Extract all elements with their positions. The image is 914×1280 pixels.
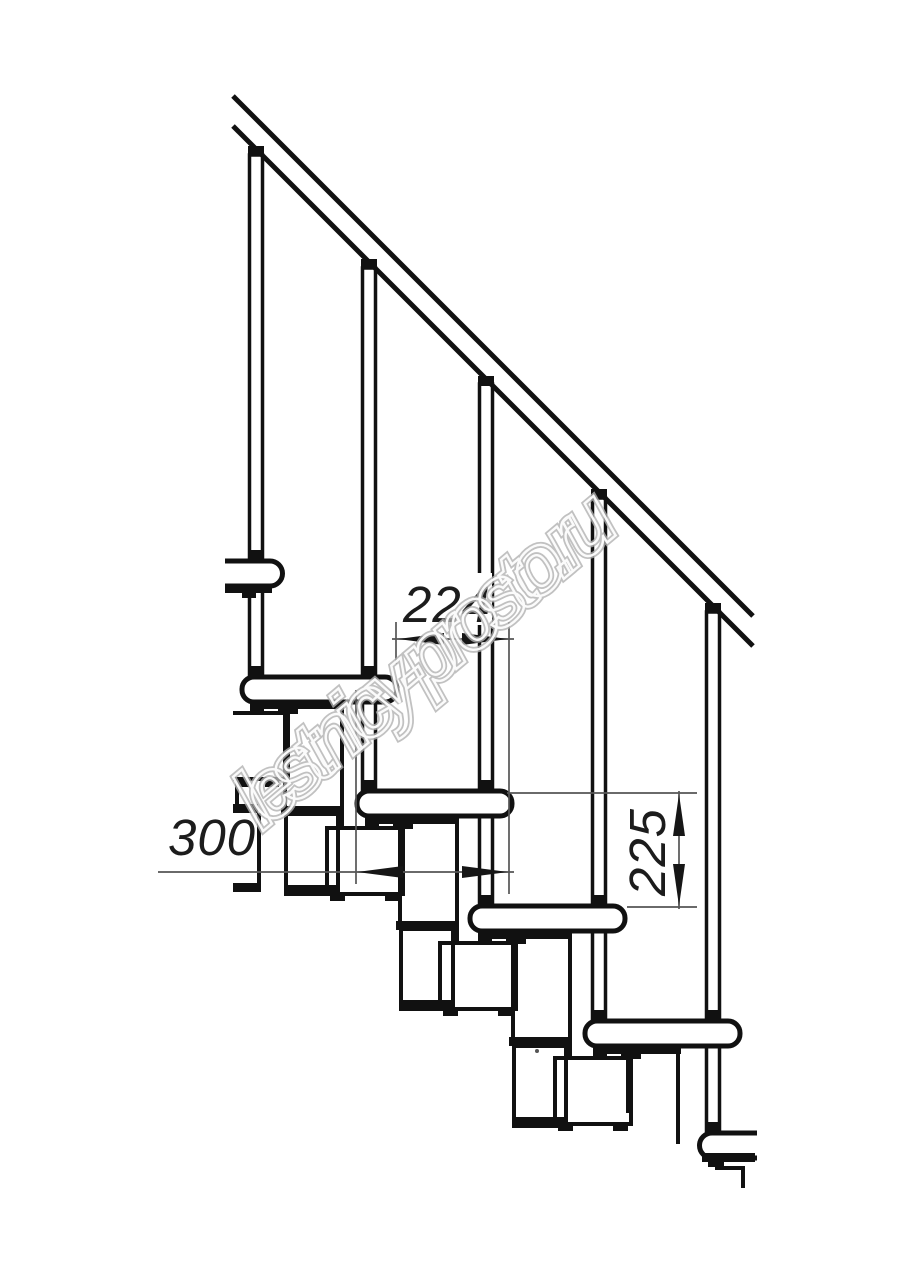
tread-cap (705, 1010, 721, 1021)
tread-4 (585, 1021, 740, 1046)
tread-flange (593, 1045, 681, 1054)
cut-structure (715, 1168, 743, 1188)
cut-structure (233, 883, 261, 892)
flange-nub (250, 708, 264, 714)
module-foot (558, 1124, 573, 1131)
module-foot (385, 894, 400, 901)
flange-nub (365, 823, 379, 829)
speck (535, 1049, 539, 1053)
baluster-5 (707, 612, 720, 1133)
module-foot (330, 894, 345, 901)
flange-nub (621, 1053, 641, 1059)
dimension-label-step-rise: 225 (619, 808, 676, 897)
staircase-drawing: 224 300 225 lestnicy-prosto.ru lestnicy-… (0, 0, 914, 1280)
tread-flange (365, 815, 455, 824)
drawing-svg: 224 300 225 lestnicy-prosto.ru lestnicy-… (0, 0, 914, 1280)
flange-nub (242, 592, 256, 598)
tread-3 (470, 906, 625, 931)
tread-cap (591, 895, 607, 906)
tread-cap (591, 1010, 607, 1021)
tread-cap (478, 895, 494, 906)
tread-flange (702, 1153, 755, 1162)
tread-cap (248, 550, 264, 561)
tread-cap (361, 780, 377, 791)
baluster-1 (250, 155, 263, 677)
module-foot (498, 1009, 513, 1016)
tread-cap (478, 780, 494, 791)
flange-nub (478, 938, 492, 944)
module-foot (443, 1009, 458, 1016)
tread-0-partial (225, 561, 283, 586)
tread-cap (705, 1122, 721, 1133)
module-neck-4 (628, 1046, 678, 1144)
tread-cap (248, 666, 264, 677)
arrow-left-icon (357, 866, 403, 878)
tread-2 (357, 791, 512, 816)
flange-nub (593, 1053, 607, 1059)
tread-flange (225, 584, 272, 593)
tread-flange (478, 930, 568, 939)
flange-nub (506, 938, 526, 944)
flange-nub (393, 823, 413, 829)
module-foot (613, 1124, 628, 1131)
dimension-label-tread-depth: 300 (168, 809, 256, 866)
